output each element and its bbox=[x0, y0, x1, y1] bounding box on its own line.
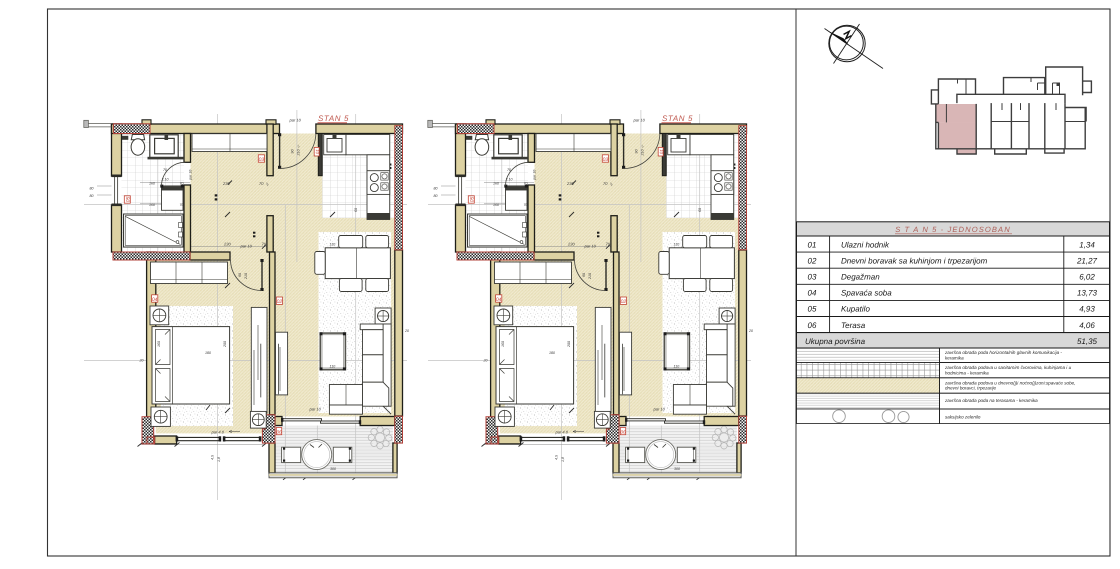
svg-text:300: 300 bbox=[330, 467, 336, 471]
svg-text:4,06: 4,06 bbox=[1079, 321, 1095, 330]
svg-text:06: 06 bbox=[808, 321, 817, 330]
svg-text:110: 110 bbox=[330, 242, 336, 246]
svg-text:01: 01 bbox=[808, 240, 817, 249]
svg-text:03: 03 bbox=[808, 273, 817, 282]
svg-text:06: 06 bbox=[276, 429, 282, 434]
svg-text:saksijsko zelenilo: saksijsko zelenilo bbox=[945, 414, 981, 419]
svg-text:hodnicima - keramika: hodnicima - keramika bbox=[945, 370, 989, 375]
svg-text:05: 05 bbox=[808, 305, 817, 314]
svg-text:par 10: par 10 bbox=[240, 243, 253, 248]
svg-text:par 10: par 10 bbox=[189, 170, 193, 181]
svg-text:160: 160 bbox=[149, 182, 155, 186]
svg-text:70: 70 bbox=[180, 203, 184, 207]
svg-text:70: 70 bbox=[163, 168, 167, 172]
svg-text:keramika: keramika bbox=[945, 356, 964, 361]
svg-text:13,73: 13,73 bbox=[1077, 289, 1098, 298]
svg-text:Spavaća soba: Spavaća soba bbox=[841, 289, 892, 298]
svg-text:51,35: 51,35 bbox=[1077, 337, 1098, 346]
svg-text:02: 02 bbox=[277, 299, 283, 305]
svg-text:završna obrada poda horizontal: završna obrada poda horizontalnih glavni… bbox=[944, 350, 1062, 355]
svg-text:80: 80 bbox=[90, 187, 94, 191]
svg-text:4,5: 4,5 bbox=[211, 455, 215, 460]
svg-text:70: 70 bbox=[262, 242, 267, 247]
svg-text:1,8: 1,8 bbox=[217, 457, 221, 462]
svg-text:par 4.0: par 4.0 bbox=[211, 429, 225, 434]
svg-text:4,93: 4,93 bbox=[1079, 305, 1095, 314]
svg-text:110: 110 bbox=[330, 365, 336, 369]
svg-text:230: 230 bbox=[222, 181, 230, 186]
svg-text:05: 05 bbox=[126, 197, 132, 203]
svg-text:par 10: par 10 bbox=[289, 118, 302, 123]
svg-text:Ulazni hodnik: Ulazni hodnik bbox=[841, 240, 890, 249]
svg-text:par 10: par 10 bbox=[309, 407, 322, 412]
svg-text:20: 20 bbox=[139, 359, 144, 363]
svg-text:STAN 5: STAN 5 bbox=[318, 114, 349, 123]
svg-text:S T A N 5 - JEDNOSOBAN: S T A N 5 - JEDNOSOBAN bbox=[895, 225, 1011, 234]
svg-text:180: 180 bbox=[205, 351, 211, 355]
svg-text:završna obrada poda na terasam: završna obrada poda na terasama - kerami… bbox=[944, 398, 1038, 403]
svg-text:70: 70 bbox=[180, 182, 184, 186]
svg-text:Terasa: Terasa bbox=[841, 321, 866, 330]
svg-text:završna obrada podova u dnevno: završna obrada podova u dnevno(j)i noćno… bbox=[944, 380, 1076, 385]
svg-text:04: 04 bbox=[808, 289, 817, 298]
svg-text:6,02: 6,02 bbox=[1079, 273, 1095, 282]
svg-text:03: 03 bbox=[259, 157, 265, 163]
svg-text:01: 01 bbox=[315, 149, 320, 155]
svg-text:90: 90 bbox=[291, 150, 295, 154]
svg-text:dnevni boravci, trpezarije: dnevni boravci, trpezarije bbox=[945, 386, 997, 391]
svg-text:60: 60 bbox=[354, 208, 358, 212]
svg-text:80: 80 bbox=[90, 194, 94, 198]
svg-text:70: 70 bbox=[259, 181, 264, 186]
svg-text:Degažman: Degažman bbox=[841, 273, 880, 282]
svg-text:210: 210 bbox=[244, 273, 248, 280]
svg-text:210: 210 bbox=[297, 150, 301, 157]
svg-text:02: 02 bbox=[808, 256, 817, 265]
svg-text:20: 20 bbox=[404, 329, 409, 333]
svg-text:04: 04 bbox=[152, 297, 158, 303]
svg-text:Ukupna površina: Ukupna površina bbox=[805, 337, 866, 346]
svg-text:21,27: 21,27 bbox=[1076, 256, 1098, 265]
svg-text:2.10: 2.10 bbox=[161, 178, 169, 182]
svg-text:230: 230 bbox=[223, 242, 231, 247]
svg-text:200: 200 bbox=[223, 341, 227, 348]
svg-text:90: 90 bbox=[238, 273, 242, 277]
svg-text:160: 160 bbox=[149, 203, 155, 207]
svg-text:Dnevni boravak sa kuhinjom i t: Dnevni boravak sa kuhinjom i trpezarijom bbox=[841, 256, 988, 265]
svg-text:160: 160 bbox=[157, 341, 161, 347]
svg-text:završna obrada podova u sanita: završna obrada podova u sanitarnim čvoro… bbox=[944, 365, 1072, 370]
svg-text:1,34: 1,34 bbox=[1079, 240, 1095, 249]
svg-text:Kupatilo: Kupatilo bbox=[841, 305, 870, 314]
